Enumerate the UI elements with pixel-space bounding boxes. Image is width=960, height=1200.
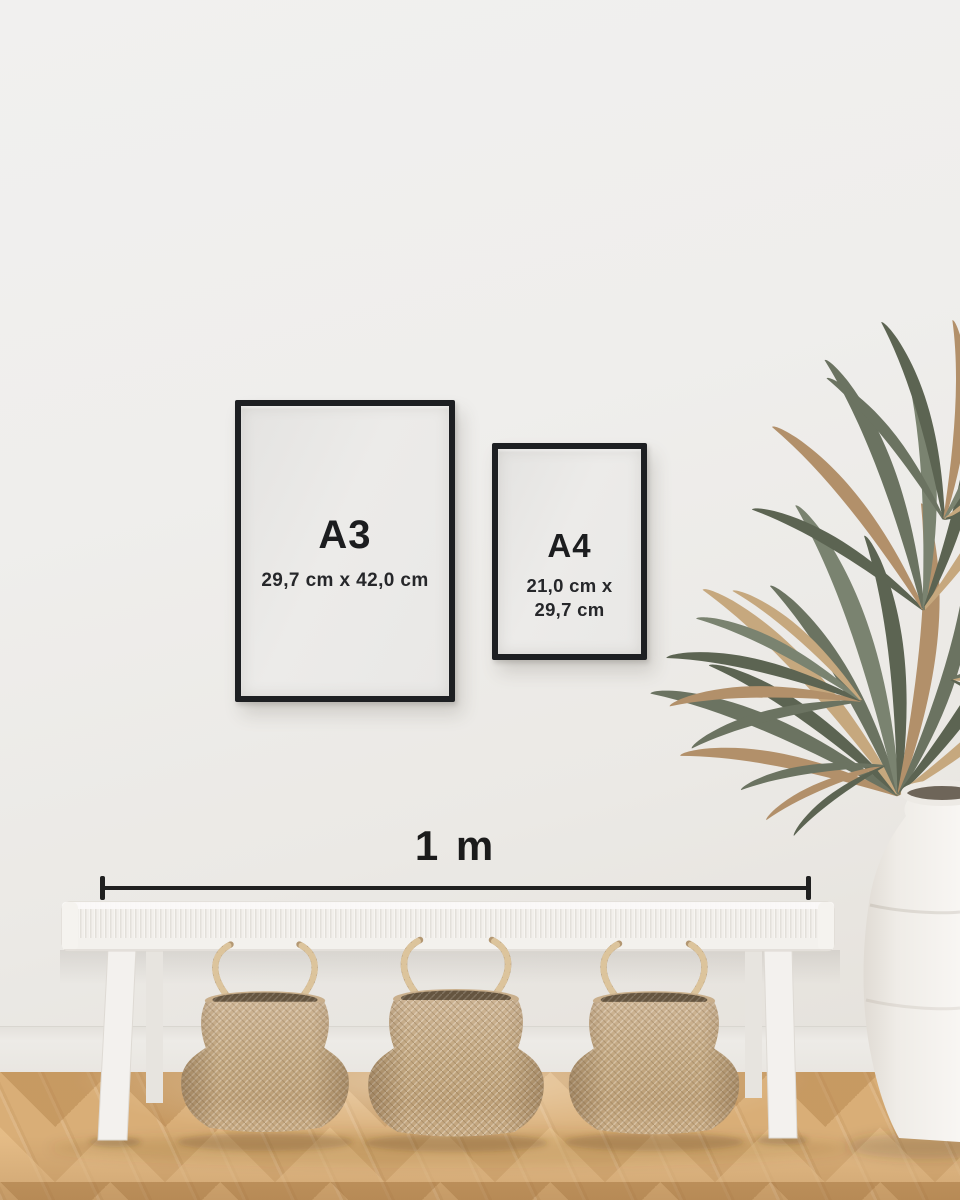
frame-a4-paper: A4 21,0 cm x 29,7 cm [498, 449, 641, 654]
frame-a3: A3 29,7 cm x 42,0 cm [235, 400, 455, 702]
frame-a3-paper: A3 29,7 cm x 42,0 cm [241, 406, 449, 696]
frame-a4-dimensions-line1: 21,0 cm x [498, 574, 641, 598]
frame-a4: A4 21,0 cm x 29,7 cm [492, 443, 647, 660]
scale-bar-left-cap [100, 876, 105, 900]
frame-a3-label: A3 [241, 406, 449, 555]
baseboard [0, 1026, 960, 1073]
scale-bar-right-cap [806, 876, 811, 900]
frame-a4-dimensions-line2: 29,7 cm [498, 598, 641, 622]
frame-a3-dimensions-line: 29,7 cm x 42,0 cm [241, 570, 449, 592]
size-guide-scene: A3 29,7 cm x 42,0 cm A4 21,0 cm x 29,7 c… [0, 0, 960, 1200]
scale-bar: 1 m [101, 822, 810, 902]
scale-bar-label: 1 m [101, 822, 810, 870]
frame-a4-dimensions: 21,0 cm x 29,7 cm [498, 574, 641, 622]
scale-bar-line [101, 886, 810, 890]
frame-a3-dimensions: 29,7 cm x 42,0 cm [241, 570, 449, 592]
wall [0, 0, 960, 1072]
herringbone-floor [0, 1072, 960, 1200]
frame-a4-label: A4 [498, 449, 641, 562]
